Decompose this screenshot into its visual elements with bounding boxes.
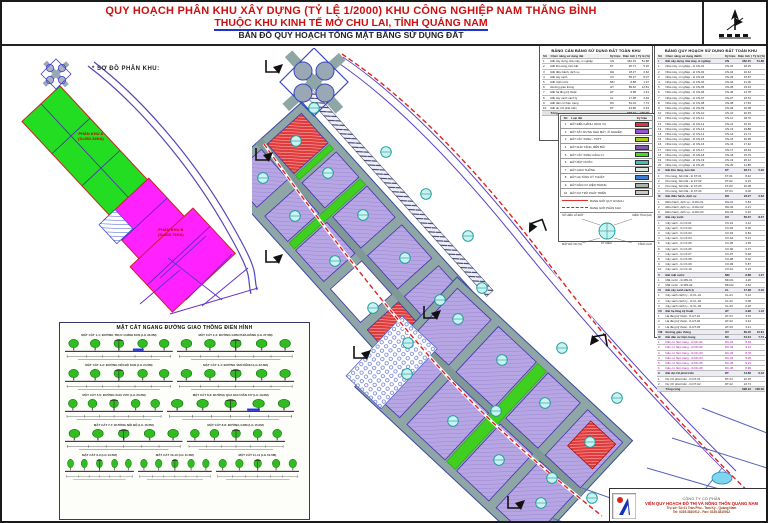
legend-item: 5 ĐẤT CÂY XANH CÁCH LY xyxy=(560,151,653,159)
page-subtitle: BẢN ĐỒ QUY HOẠCH TỔNG MẶT BẰNG SỬ DỤNG Đ… xyxy=(2,30,700,40)
map-legend: Stt Loại đất Ký hiệu 1 ĐẤT ĐIỀU HÀNH, DỊ… xyxy=(558,113,655,242)
road-cross-sections-panel: MẶT CẮT NGANG ĐƯỜNG GIAO THÔNG ĐIỂN HÌNH… xyxy=(59,322,310,520)
balance-table-title: BẢNG CÂN BẰNG SỬ DỤNG ĐẤT TOÀN KHU xyxy=(542,48,650,53)
road-cross-section: MẶT CẮT 9-9 (LG 13.5M) xyxy=(63,452,136,482)
header: QUY HOẠCH PHÂN KHU XÂY DỰNG (TỶ LỆ 1/200… xyxy=(2,2,766,46)
road-cross-section: MẶT CẮT 10-10 (LG 11.5M) xyxy=(136,452,214,482)
legend-line-item: RANH GIỚI PHÂN KHU xyxy=(560,205,653,211)
inset-title: * SƠ ĐỒ PHÂN KHU: xyxy=(92,66,160,72)
zoning-inset-map: * SƠ ĐỒ PHÂN KHU: xyxy=(20,52,260,320)
legend-item: 2 ĐẤT XÂY DỰNG NHÀ MÁY, XÍ NGHIỆP xyxy=(560,129,653,137)
cross-section-diagram xyxy=(167,397,294,421)
plan-sheet: QUY HOẠCH PHÂN KHU XÂY DỰNG (TỶ LỆ 1/200… xyxy=(0,0,768,523)
cross-section-diagram xyxy=(216,457,299,481)
legend-swatch xyxy=(635,145,649,150)
landuse-table-body: I Đất xây dựng nhà máy, xí nghiệp CN 362… xyxy=(657,59,765,392)
road-cross-section: MẶT CẮT 4-4: ĐƯỜNG VEN KÊNH (LG 22.5M) xyxy=(175,362,297,392)
balance-table-body: 1 Đất xây dựng nhà máy, xí nghiệp CN 362… xyxy=(542,59,650,116)
road-cross-section: MẶT CẮT 6-6: ĐƯỜNG QUA KHU DÂN CƯ (LG 19… xyxy=(165,392,296,422)
road-cross-section: MẶT CẮT 2-2: ĐƯỜNG GOM PHÍA ĐÔNG (LG 27.… xyxy=(175,332,297,362)
cross-section-diagram xyxy=(65,367,173,391)
table-row: Tổng cộng 698.10 100.00 xyxy=(657,387,765,392)
parcel-label-diagram: SỐ HIỆU LÔ ĐẤT DIỆN TÍCH (HA) MẬT ĐỘ XD … xyxy=(560,212,653,246)
legend-swatch xyxy=(635,183,649,188)
legend-item: 7 ĐẤT GIAO THÔNG xyxy=(560,167,653,175)
road-cross-section: MẶT CẮT 1-1: ĐƯỜNG TRỤC CHÍNH KCN (LG 33… xyxy=(63,332,175,362)
legend-swatch xyxy=(635,167,649,172)
road-cross-section: MẶT CẮT 3-3: ĐƯỜNG NỘI BỘ KCN (LG 24.0M) xyxy=(63,362,175,392)
company-title-block: CÔNG TY CỔ PHẦN VIỆN QUY HOẠCH ĐÔ THỊ VÀ… xyxy=(609,488,768,523)
landuse-table-title: BẢNG QUY HOẠCH SỬ DỤNG ĐẤT TOÀN KHU xyxy=(657,48,765,53)
cross-section-diagram xyxy=(187,427,285,451)
line-sample xyxy=(562,207,588,208)
road-cross-section: MẶT CẮT 5-5: ĐƯỜNG KHU VỰC (LG 20.5M) xyxy=(63,392,165,422)
legend-swatch xyxy=(635,160,649,165)
company-text: CÔNG TY CỔ PHẦN VIỆN QUY HOẠCH ĐÔ THỊ VÀ… xyxy=(638,497,765,515)
cross-section-diagram xyxy=(138,457,212,481)
legend-item: 10 ĐẤT DỰ TRỮ PHÁT TRIỂN xyxy=(560,189,653,197)
legend-item: 6 ĐẤT MẶT NƯỚC xyxy=(560,159,653,167)
legend-item: 3 ĐẤT CÂY XANH - TDTT xyxy=(560,136,653,144)
legend-swatch xyxy=(635,175,649,180)
road-cross-section: MẶT CẮT 11-11 (LG 10.5M) xyxy=(214,452,301,482)
legend-line-items: RANH GIỚI QUY HOẠCH RANH GIỚI PHÂN KHU xyxy=(560,198,653,211)
legend-item: 4 ĐẤT KHO TÀNG, BẾN BÃI xyxy=(560,144,653,152)
zone-b-label: PHÂN KHU B(S=345.76HA) xyxy=(158,228,184,238)
legend-line-item: RANH GIỚI QUY HOẠCH xyxy=(560,198,653,204)
cross-section-diagram xyxy=(65,397,163,421)
legend-swatch xyxy=(635,190,649,195)
inset-drawing xyxy=(20,52,260,320)
cross-section-diagram xyxy=(65,457,134,481)
legend-item: 8 ĐẤT HẠ TẦNG KỸ THUẬT xyxy=(560,174,653,182)
legend-swatch xyxy=(635,129,649,134)
line-sample xyxy=(562,200,588,201)
cross-section-diagram xyxy=(177,337,295,361)
cross-section-diagram xyxy=(65,427,183,451)
land-use-table: BẢNG QUY HOẠCH SỬ DỤNG ĐẤT TOÀN KHU Stt … xyxy=(654,45,768,338)
road-cross-section: MẶT CẮT 7-7: ĐƯỜNG NỘI BỘ (LG 16.5M) xyxy=(63,422,185,452)
cross-section-diagram xyxy=(65,337,173,361)
legend-swatch xyxy=(635,137,649,142)
company-phone: Tel: 0235.3810912 - Fax: 0235.3810912 xyxy=(638,510,765,514)
legend-swatch xyxy=(635,152,649,157)
cross-sections-grid: MẶT CẮT 1-1: ĐƯỜNG TRỤC CHÍNH KCN (LG 33… xyxy=(63,332,306,482)
north-arrow-icon xyxy=(715,6,755,42)
cross-section-diagram xyxy=(177,367,295,391)
company-logo xyxy=(612,493,636,519)
cross-sections-title: MẶT CẮT NGANG ĐƯỜNG GIAO THÔNG ĐIỂN HÌNH xyxy=(63,325,306,331)
north-arrow-box xyxy=(702,2,766,46)
header-titles: QUY HOẠCH PHÂN KHU XÂY DỰNG (TỶ LỆ 1/200… xyxy=(2,2,700,46)
legend-item: 9 ĐẤT DÂN CƯ HIỆN TRẠNG xyxy=(560,182,653,190)
legend-items: 1 ĐẤT ĐIỀU HÀNH, DỊCH VỤ 2 ĐẤT XÂY DỰNG … xyxy=(560,121,653,197)
page-title-line2: THUỘC KHU KINH TẾ MỞ CHU LAI, TỈNH QUẢNG… xyxy=(2,17,700,29)
page-title: QUY HOẠCH PHÂN KHU XÂY DỰNG (TỶ LỆ 1/200… xyxy=(2,5,700,17)
road-cross-section: MẶT CẮT 8-8: ĐƯỜNG GOM (LG 15.0M) xyxy=(185,422,287,452)
legend-item: 1 ĐẤT ĐIỀU HÀNH, DỊCH VỤ xyxy=(560,121,653,129)
legend-swatch xyxy=(635,122,649,127)
zone-a-label: PHÂN KHU A(S=352.34HA) xyxy=(78,132,104,142)
